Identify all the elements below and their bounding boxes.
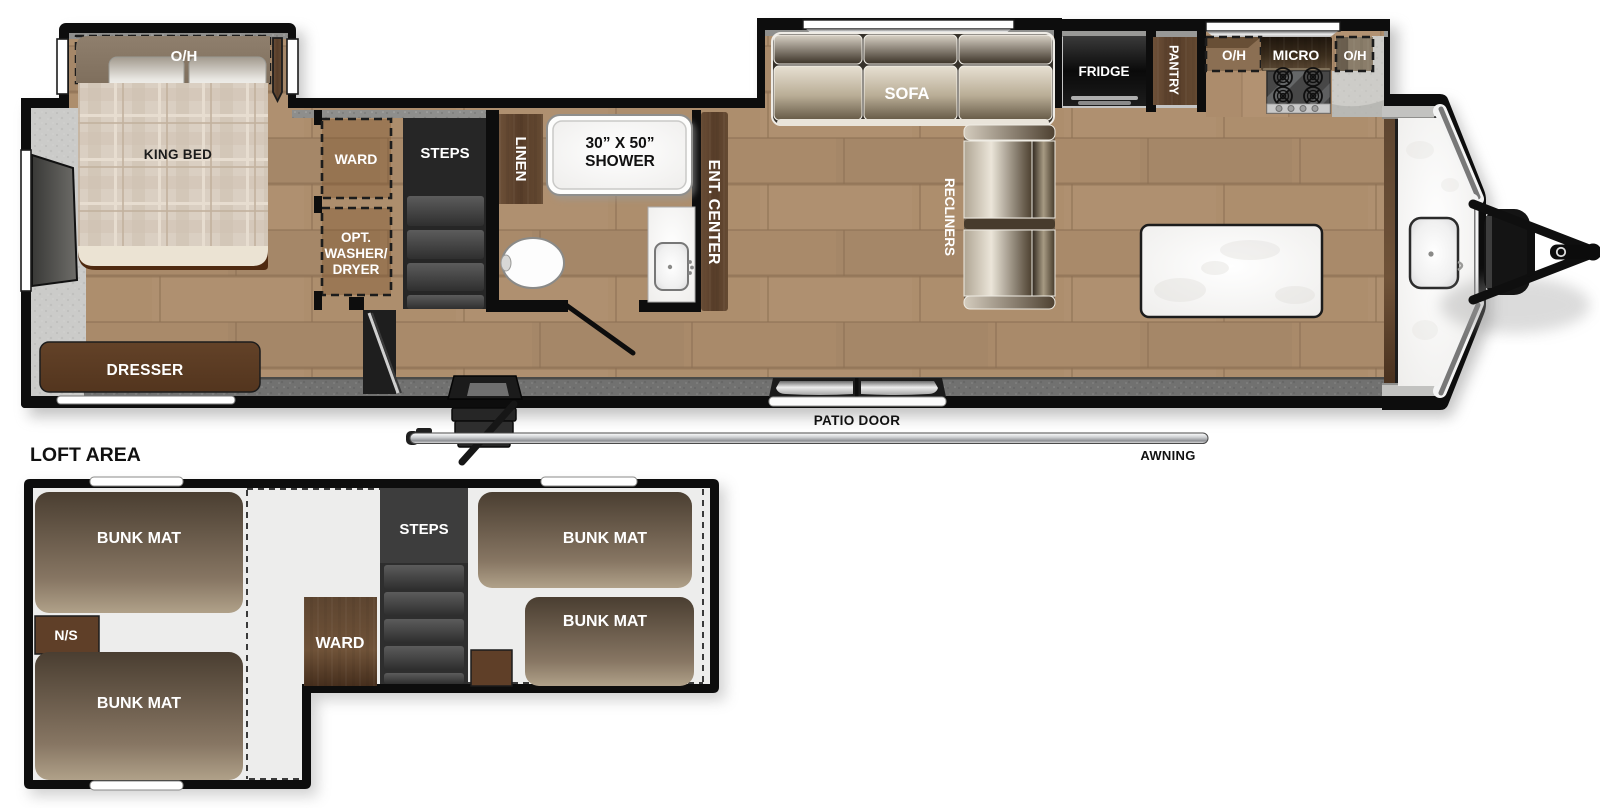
svg-text:RECLINERS: RECLINERS — [942, 178, 957, 256]
svg-text:O/H: O/H — [1222, 48, 1246, 63]
svg-text:ENT. CENTER: ENT. CENTER — [705, 160, 722, 265]
svg-text:BUNK MAT: BUNK MAT — [563, 530, 647, 547]
svg-text:30” X 50”: 30” X 50” — [586, 135, 655, 152]
svg-text:BUNK MAT: BUNK MAT — [97, 530, 181, 547]
svg-text:PATIO DOOR: PATIO DOOR — [814, 413, 901, 428]
svg-text:OPT.: OPT. — [341, 230, 371, 245]
svg-text:WARD: WARD — [316, 635, 365, 652]
svg-text:AWNING: AWNING — [1140, 448, 1195, 463]
svg-text:N/S: N/S — [54, 627, 77, 643]
svg-text:LINEN: LINEN — [512, 137, 529, 182]
svg-text:WASHER/: WASHER/ — [324, 246, 387, 261]
svg-text:MICRO: MICRO — [1273, 47, 1320, 63]
svg-text:PANTRY: PANTRY — [1167, 45, 1181, 96]
svg-text:SHOWER: SHOWER — [585, 153, 655, 170]
svg-text:WARD: WARD — [335, 151, 378, 167]
svg-text:DRYER: DRYER — [333, 262, 380, 277]
svg-text:STEPS: STEPS — [399, 521, 448, 538]
svg-text:BUNK MAT: BUNK MAT — [563, 613, 647, 630]
svg-text:FRIDGE: FRIDGE — [1078, 64, 1129, 79]
svg-text:O/H: O/H — [1343, 48, 1366, 63]
svg-text:STEPS: STEPS — [420, 145, 469, 162]
svg-text:BUNK MAT: BUNK MAT — [97, 695, 181, 712]
svg-text:SOFA: SOFA — [885, 85, 930, 103]
svg-text:O/H: O/H — [171, 48, 198, 65]
svg-text:LOFT AREA: LOFT AREA — [30, 444, 141, 466]
svg-text:DRESSER: DRESSER — [106, 362, 183, 379]
svg-text:KING BED: KING BED — [144, 147, 212, 162]
